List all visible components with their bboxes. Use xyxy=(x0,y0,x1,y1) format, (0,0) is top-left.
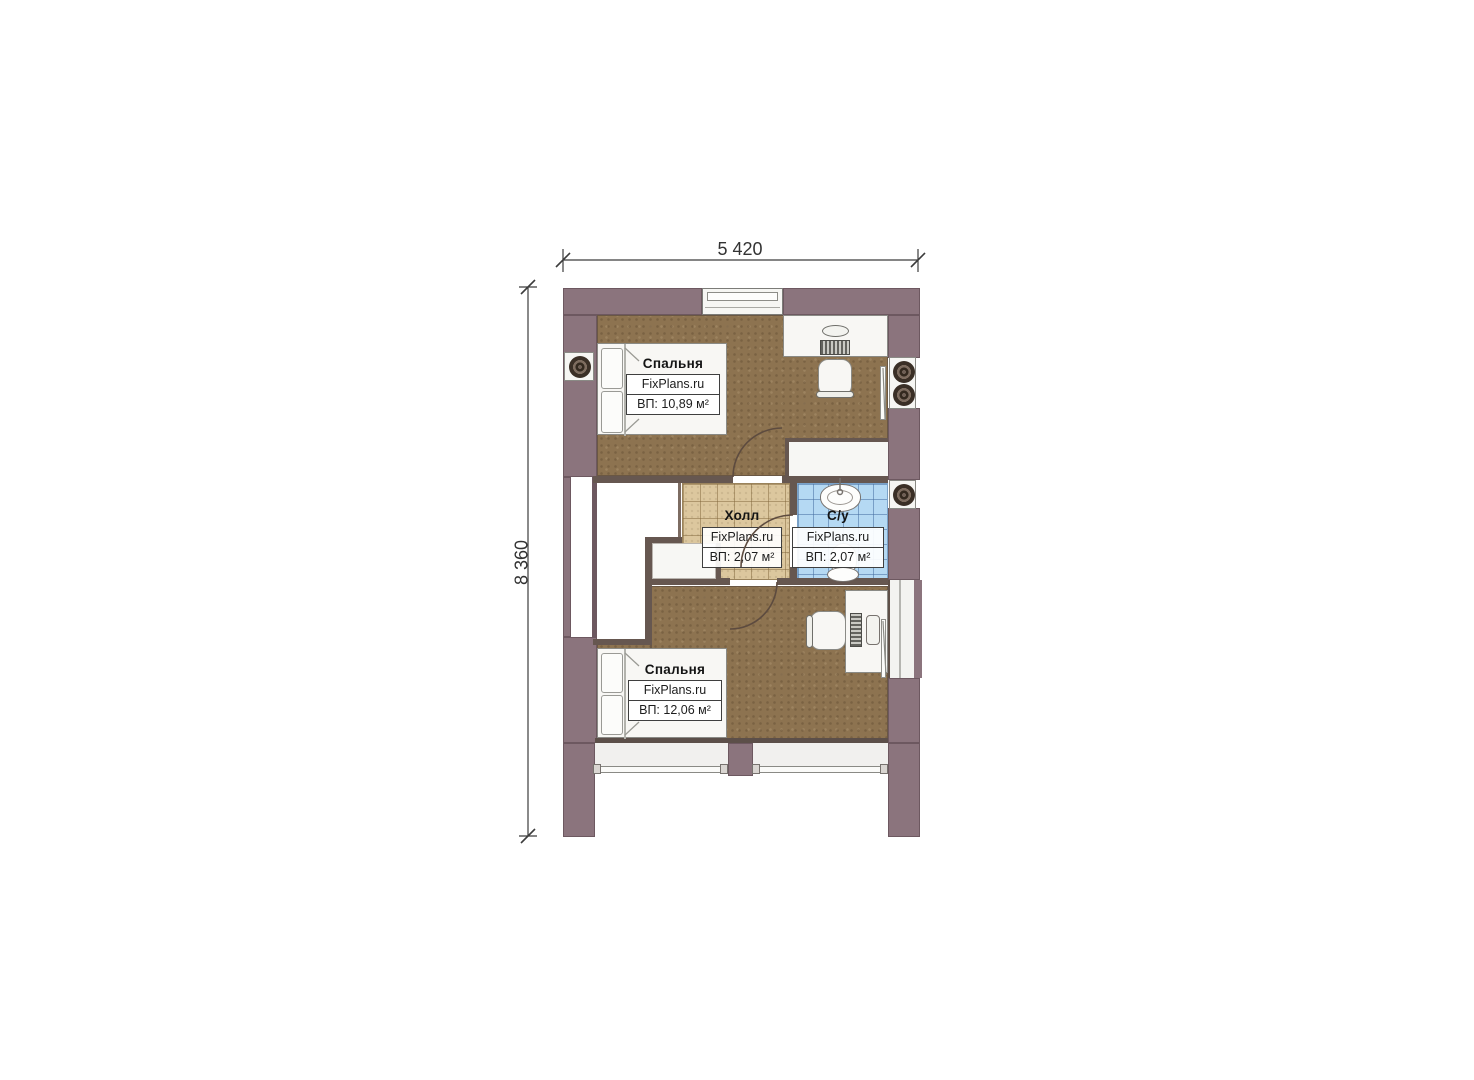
wall-bedroom-top-bottom-b xyxy=(782,476,888,483)
wall-left-lower xyxy=(563,637,597,743)
railing-post xyxy=(752,764,760,774)
vent-circle-icon xyxy=(893,361,915,383)
brand-box: FixPlans.ru xyxy=(626,374,720,395)
dimension-height-label: 8 360 xyxy=(512,513,533,613)
window-top-frame xyxy=(707,292,778,301)
vent-box-left xyxy=(564,352,594,381)
area-box: ВП: 12,06 м² xyxy=(628,700,722,721)
area-box: ВП: 2,07 м² xyxy=(702,547,782,568)
wall-top-left xyxy=(563,288,702,315)
column-right xyxy=(888,743,920,837)
wall-right-4 xyxy=(888,678,920,743)
chair-bottom-back xyxy=(806,615,813,648)
vent-circle-icon xyxy=(569,356,591,378)
sink-basin xyxy=(827,490,853,505)
railing-post xyxy=(720,764,728,774)
floor-plan-canvas: Спальня FixPlans.ru ВП: 10,89 м² Холл Fi… xyxy=(0,0,1474,1080)
brand-box: FixPlans.ru xyxy=(792,527,884,548)
railing-post xyxy=(880,764,888,774)
wall-left-mid-outer xyxy=(563,477,571,637)
room-title-bedroom-top: Спальня xyxy=(643,356,703,372)
vent-box-right-single xyxy=(889,480,916,509)
wall-hall-void-thin xyxy=(678,483,681,537)
monitor-icon xyxy=(850,613,862,647)
wall-left-upper xyxy=(563,315,597,477)
balcony-railing-left xyxy=(595,766,728,773)
wall-void-bottom xyxy=(593,639,652,645)
brand-box: FixPlans.ru xyxy=(702,527,782,548)
wall-right-3 xyxy=(888,508,920,580)
area-box: ВП: 10,89 м² xyxy=(626,394,720,415)
wall-hall-bottom xyxy=(645,578,730,585)
vent-circle-icon xyxy=(893,384,915,406)
keyboard-icon xyxy=(866,615,880,645)
wall-right-2 xyxy=(888,408,920,480)
window-top-sill-line xyxy=(705,307,780,308)
wall-left-mid-innerline xyxy=(592,477,597,637)
area-box: ВП: 2,07 м² xyxy=(792,547,884,568)
bedroom-top-labels: Спальня FixPlans.ru ВП: 10,89 м² xyxy=(615,356,731,415)
vent-circle-icon xyxy=(893,484,915,506)
wall-top-right xyxy=(783,288,920,315)
hall-labels: Холл FixPlans.ru ВП: 2,07 м² xyxy=(692,508,792,568)
bedroom-bottom-labels: Спальня FixPlans.ru ВП: 12,06 м² xyxy=(617,662,733,721)
closet-top xyxy=(789,442,888,476)
window-right-band xyxy=(888,580,920,678)
printer-body-icon xyxy=(820,340,850,355)
room-title-bathroom: С/у xyxy=(827,508,849,524)
brand-box: FixPlans.ru xyxy=(628,680,722,701)
window-casement-bottom xyxy=(881,619,886,678)
bathroom-labels: С/у FixPlans.ru ВП: 2,07 м² xyxy=(788,508,888,568)
chair-bottom xyxy=(810,611,846,650)
chair-top-back xyxy=(816,391,854,398)
vent-box-right-double xyxy=(889,357,916,409)
wall-right-1 xyxy=(888,315,920,358)
printer-top-icon xyxy=(822,325,849,337)
wall-void-l-vertical xyxy=(645,537,652,642)
room-title-hall: Холл xyxy=(724,508,759,524)
dimension-width-label: 5 420 xyxy=(690,239,790,260)
balcony-mid-post xyxy=(728,743,753,776)
room-title-bedroom-bottom: Спальня xyxy=(645,662,705,678)
window-right-outer-strip xyxy=(914,580,922,678)
window-top xyxy=(702,288,783,315)
balcony-railing-right xyxy=(753,766,888,773)
wall-bedroom-top-bottom-a xyxy=(593,476,733,483)
column-left xyxy=(563,743,595,837)
window-right-glass-line xyxy=(899,580,901,678)
railing-post xyxy=(593,764,601,774)
toilet-tank xyxy=(827,567,859,582)
window-casement-top xyxy=(880,366,886,420)
desk-top xyxy=(783,315,888,357)
